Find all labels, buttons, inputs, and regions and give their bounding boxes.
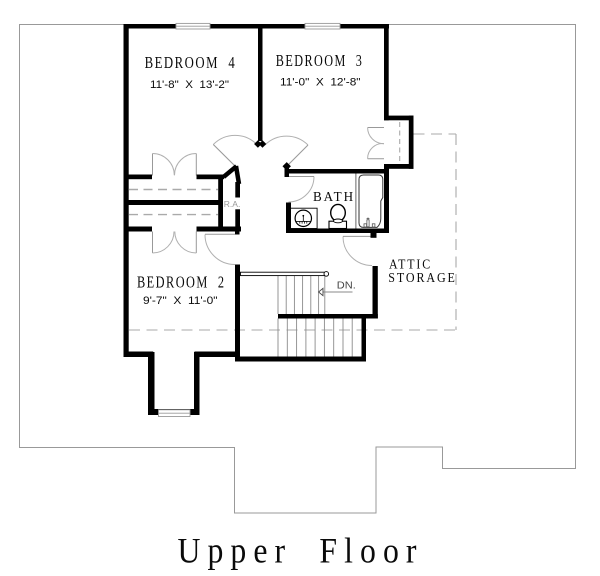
svg-text:BEDROOM 3: BEDROOM 3 (276, 51, 364, 70)
svg-text:BEDROOM 4: BEDROOM 4 (145, 53, 237, 72)
svg-text:R.A.: R.A. (224, 199, 241, 209)
svg-text:Upper Floor: Upper Floor (178, 531, 424, 571)
svg-text:BEDROOM 2: BEDROOM 2 (137, 273, 226, 292)
svg-text:DN.: DN. (337, 280, 356, 291)
svg-text:11'-8" X 13'-2": 11'-8" X 13'-2" (150, 79, 229, 91)
svg-text:STORAGE: STORAGE (388, 271, 457, 286)
svg-text:9'-7" X 11'-0": 9'-7" X 11'-0" (143, 295, 218, 307)
svg-text:BATH: BATH (313, 189, 355, 204)
svg-text:11'-0" X 12'-8": 11'-0" X 12'-8" (280, 77, 361, 89)
